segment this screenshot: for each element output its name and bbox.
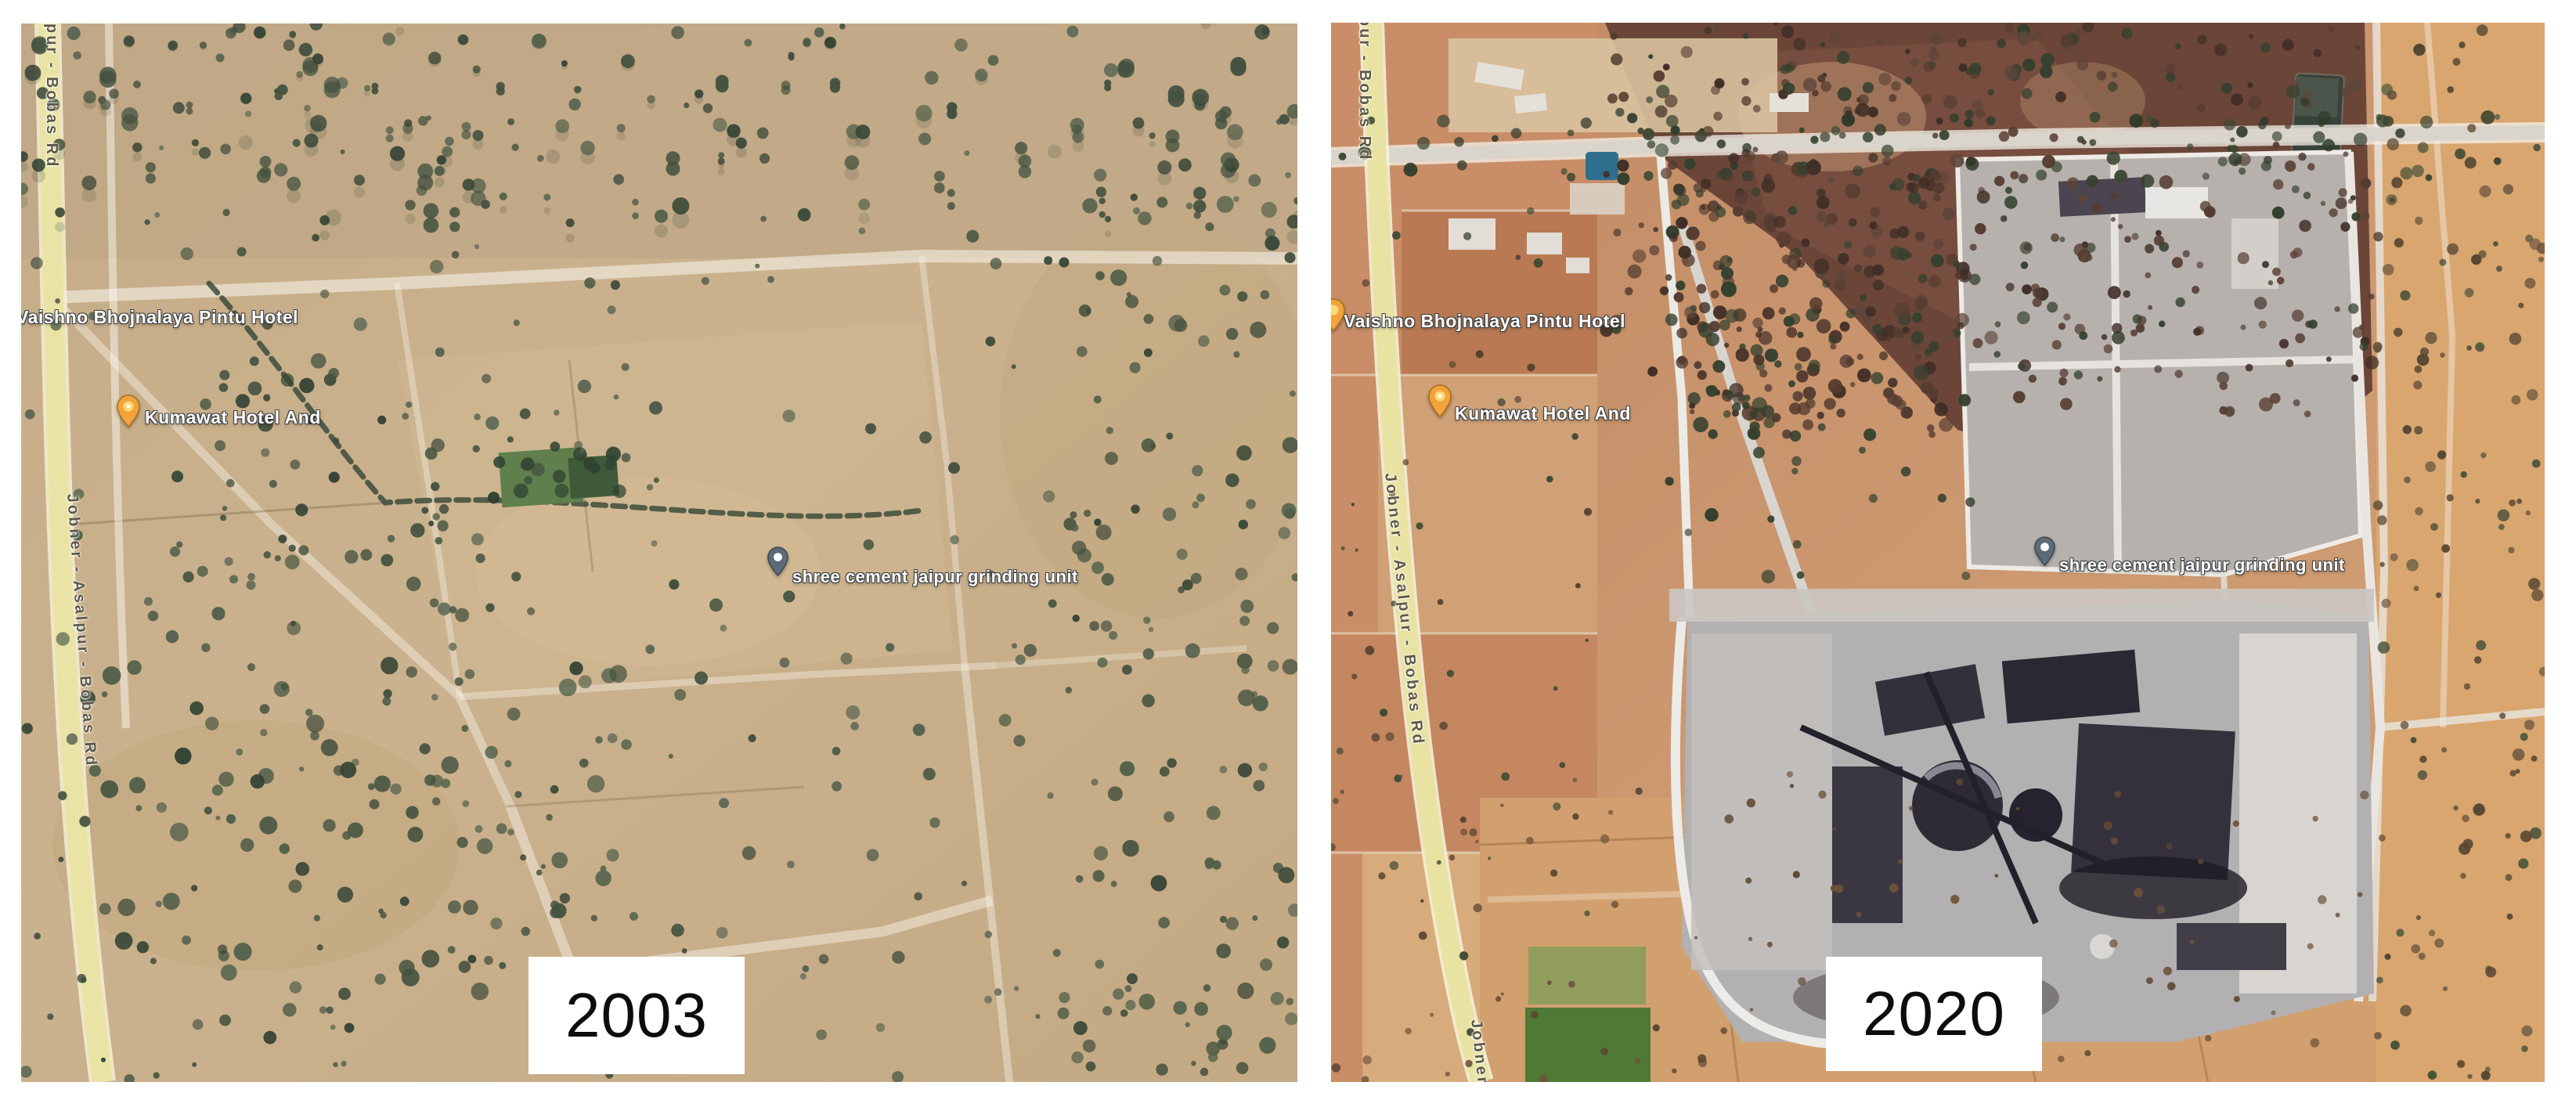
terrain-2003 — [21, 23, 1297, 1082]
poi-label-shree-cement[interactable]: shree cement jaipur grinding unit — [2059, 555, 2345, 575]
poi-label-vaishno-hotel[interactable]: Vaishno Bhojnalaya Pintu Hotel — [21, 307, 298, 328]
hotel-pin-icon[interactable] — [1428, 384, 1452, 417]
poi-label-kumawat-hotel[interactable]: Kumawat Hotel And — [145, 407, 321, 428]
road-label-bobas-partial: pur - Bobas Rd — [1355, 23, 1373, 161]
poi-label-shree-cement[interactable]: shree cement jaipur grinding unit — [792, 567, 1078, 587]
road-label-bobas-partial: pur - Bobas Rd — [42, 23, 60, 168]
year-badge-2020: 2020 — [1826, 957, 2042, 1071]
cement-plant-pin-icon[interactable] — [767, 546, 788, 576]
terrain-2020 — [1331, 23, 2545, 1082]
poi-label-kumawat-hotel[interactable]: Kumawat Hotel And — [1455, 403, 1631, 424]
poi-label-vaishno-hotel[interactable]: Vaishno Bhojnalaya Pintu Hotel — [1344, 311, 1625, 332]
satellite-comparison-figure: pur - Bobas Rd Vaishno Bhojnalaya Pintu … — [0, 0, 2576, 1100]
hotel-pin-icon[interactable] — [1331, 298, 1345, 331]
satellite-panel-2003: pur - Bobas Rd Vaishno Bhojnalaya Pintu … — [21, 23, 1297, 1082]
cement-plant-pin-icon[interactable] — [2034, 536, 2055, 566]
satellite-panel-2020: pur - Bobas Rd Vaishno Bhojnalaya Pintu … — [1331, 23, 2545, 1082]
hotel-pin-icon[interactable] — [117, 395, 140, 427]
year-badge-2003: 2003 — [529, 957, 745, 1074]
